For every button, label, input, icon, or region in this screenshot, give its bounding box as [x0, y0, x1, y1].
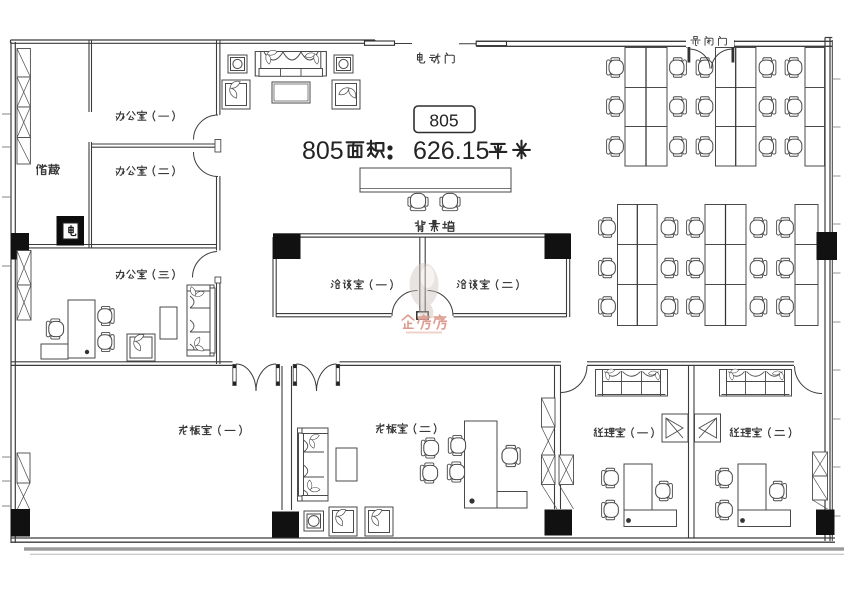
svg-text:805: 805 — [302, 137, 344, 165]
svg-text:626.15: 626.15 — [413, 137, 489, 165]
svg-text:805: 805 — [429, 111, 458, 131]
